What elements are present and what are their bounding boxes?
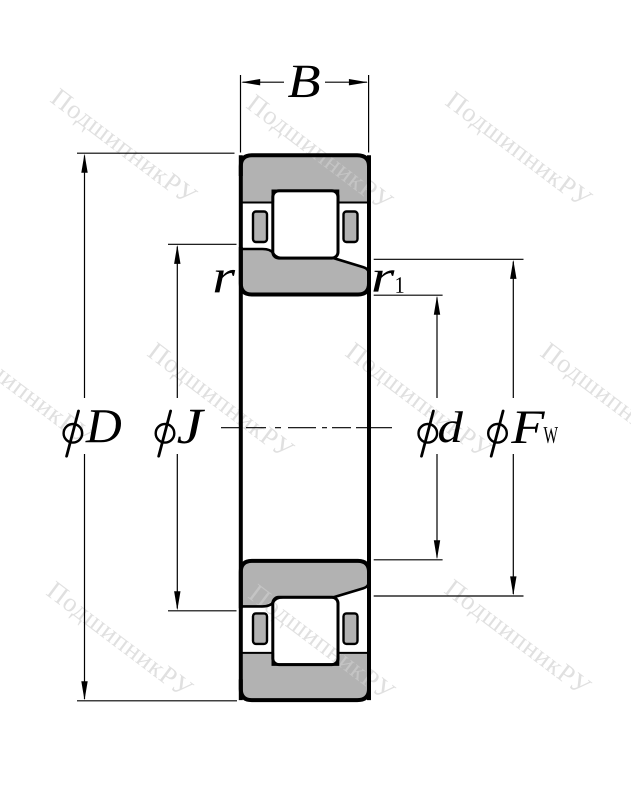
svg-text:ПодшипникРУ: ПодшипникРУ: [340, 336, 497, 465]
svg-text:ПодшипникРУ: ПодшипникРУ: [535, 336, 631, 465]
svg-text:ПодшипникРУ: ПодшипникРУ: [45, 82, 202, 211]
svg-text:ПодшипникРУ: ПодшипникРУ: [142, 336, 299, 465]
svg-text:ПодшипникРУ: ПодшипникРУ: [440, 85, 597, 214]
svg-text:ПодшипникРУ: ПодшипникРУ: [439, 573, 596, 702]
